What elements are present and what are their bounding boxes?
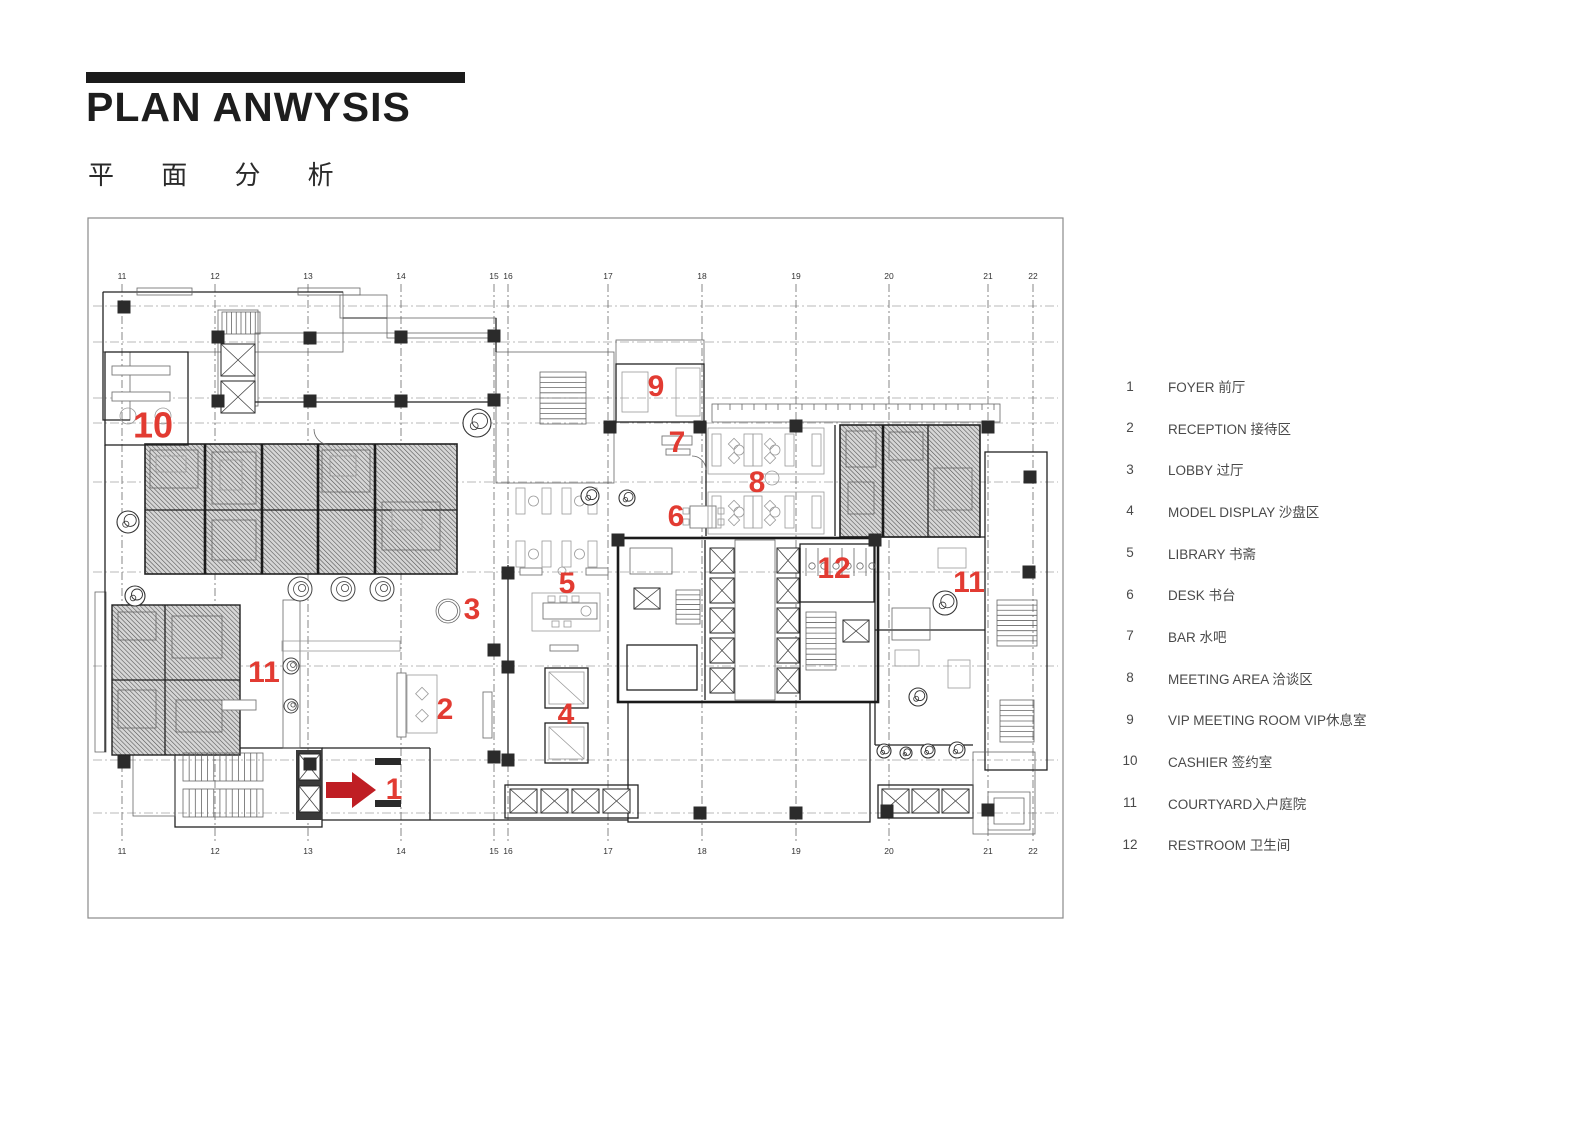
grid-label-bottom-13: 13 bbox=[303, 846, 313, 856]
grid-label-top-22: 22 bbox=[1028, 271, 1038, 281]
plan-marker-2: 2 bbox=[437, 693, 454, 726]
legend-item-label: FOYER 前厅 bbox=[1168, 376, 1245, 396]
plan-marker-6: 6 bbox=[668, 500, 685, 533]
legend-item-10: 10CASHIER 签约室 bbox=[1110, 752, 1272, 770]
plan-marker-12: 12 bbox=[817, 552, 850, 585]
legend-item-number: 3 bbox=[1110, 462, 1150, 477]
grid-label-top-13: 13 bbox=[303, 271, 313, 281]
grid-label-top-18: 18 bbox=[697, 271, 707, 281]
grid-label-bottom-19: 19 bbox=[791, 846, 801, 856]
grid-label-top-19: 19 bbox=[791, 271, 801, 281]
legend-item-number: 6 bbox=[1110, 587, 1150, 602]
legend-item-label: CASHIER 签约室 bbox=[1168, 751, 1272, 771]
legend-item-7: 7BAR 水吧 bbox=[1110, 627, 1227, 645]
legend-item-label: BAR 水吧 bbox=[1168, 626, 1227, 646]
legend-item-number: 8 bbox=[1110, 670, 1150, 685]
legend-item-6: 6DESK 书台 bbox=[1110, 585, 1236, 603]
grid-label-bottom-20: 20 bbox=[884, 846, 894, 856]
grid-label-bottom-18: 18 bbox=[697, 846, 707, 856]
legend-item-label: DESK 书台 bbox=[1168, 584, 1236, 604]
legend-item-label: RESTROOM 卫生间 bbox=[1168, 834, 1290, 854]
grid-label-bottom-14: 14 bbox=[396, 846, 406, 856]
legend-item-number: 7 bbox=[1110, 628, 1150, 643]
legend-item-label: VIP MEETING ROOM VIP休息室 bbox=[1168, 709, 1367, 729]
plan-marker-4: 4 bbox=[558, 698, 575, 731]
legend-item-label: COURTYARD入户庭院 bbox=[1168, 793, 1306, 813]
legend-item-8: 8MEETING AREA 洽谈区 bbox=[1110, 669, 1313, 687]
legend-item-12: 12RESTROOM 卫生间 bbox=[1110, 835, 1290, 853]
grid-label-bottom-17: 17 bbox=[603, 846, 613, 856]
plan-marker-5: 5 bbox=[559, 567, 576, 600]
grid-label-top-20: 20 bbox=[884, 271, 894, 281]
legend-item-number: 9 bbox=[1110, 712, 1150, 727]
plan-marker-7: 7 bbox=[669, 426, 686, 459]
grid-label-bottom-11: 11 bbox=[118, 846, 127, 856]
legend-item-11: 11COURTYARD入户庭院 bbox=[1110, 794, 1306, 812]
legend-item-label: LIBRARY 书斋 bbox=[1168, 543, 1256, 563]
grid-label-top-12: 12 bbox=[210, 271, 220, 281]
floor-plan-drawing: 1111121213131414151516161717181819192020… bbox=[0, 0, 1080, 935]
grid-label-bottom-22: 22 bbox=[1028, 846, 1038, 856]
plan-marker-10: 10 bbox=[133, 405, 173, 446]
plan-marker-9: 9 bbox=[648, 370, 665, 403]
legend-item-5: 5LIBRARY 书斋 bbox=[1110, 544, 1256, 562]
legend-item-label: MEETING AREA 洽谈区 bbox=[1168, 668, 1313, 688]
plan-marker-11: 11 bbox=[248, 656, 280, 689]
legend-item-number: 10 bbox=[1110, 753, 1150, 768]
legend-item-1: 1FOYER 前厅 bbox=[1110, 377, 1245, 395]
legend-item-2: 2RECEPTION 接待区 bbox=[1110, 419, 1291, 437]
grid-label-top-11: 11 bbox=[118, 271, 127, 281]
legend-item-number: 1 bbox=[1110, 379, 1150, 394]
plan-marker-8: 8 bbox=[749, 466, 766, 499]
legend-item-label: LOBBY 过厅 bbox=[1168, 459, 1244, 479]
plan-marker-1: 1 bbox=[386, 773, 403, 806]
plan-marker-11: 11 bbox=[953, 566, 985, 599]
legend-item-3: 3LOBBY 过厅 bbox=[1110, 460, 1244, 478]
legend-item-number: 2 bbox=[1110, 420, 1150, 435]
grid-label-bottom-16: 16 bbox=[503, 846, 513, 856]
legend-item-9: 9VIP MEETING ROOM VIP休息室 bbox=[1110, 710, 1367, 728]
grid-label-top-15: 15 bbox=[489, 271, 499, 281]
grid-label-top-17: 17 bbox=[603, 271, 613, 281]
legend-item-label: RECEPTION 接待区 bbox=[1168, 418, 1291, 438]
legend-item-number: 5 bbox=[1110, 545, 1150, 560]
grid-label-bottom-15: 15 bbox=[489, 846, 499, 856]
legend-item-number: 11 bbox=[1110, 795, 1150, 810]
grid-label-top-21: 21 bbox=[983, 271, 993, 281]
legend-item-label: MODEL DISPLAY 沙盘区 bbox=[1168, 501, 1319, 521]
grid-label-bottom-21: 21 bbox=[983, 846, 993, 856]
grid-label-top-16: 16 bbox=[503, 271, 513, 281]
legend-item-number: 4 bbox=[1110, 503, 1150, 518]
grid-label-top-14: 14 bbox=[396, 271, 406, 281]
plan-analysis-page: PLAN ANWYSIS 平 面 分 析 1111121213131414151… bbox=[0, 0, 1588, 1123]
grid-label-bottom-12: 12 bbox=[210, 846, 220, 856]
legend-item-number: 12 bbox=[1110, 837, 1150, 852]
legend-item-4: 4MODEL DISPLAY 沙盘区 bbox=[1110, 502, 1319, 520]
plan-marker-3: 3 bbox=[464, 593, 481, 626]
